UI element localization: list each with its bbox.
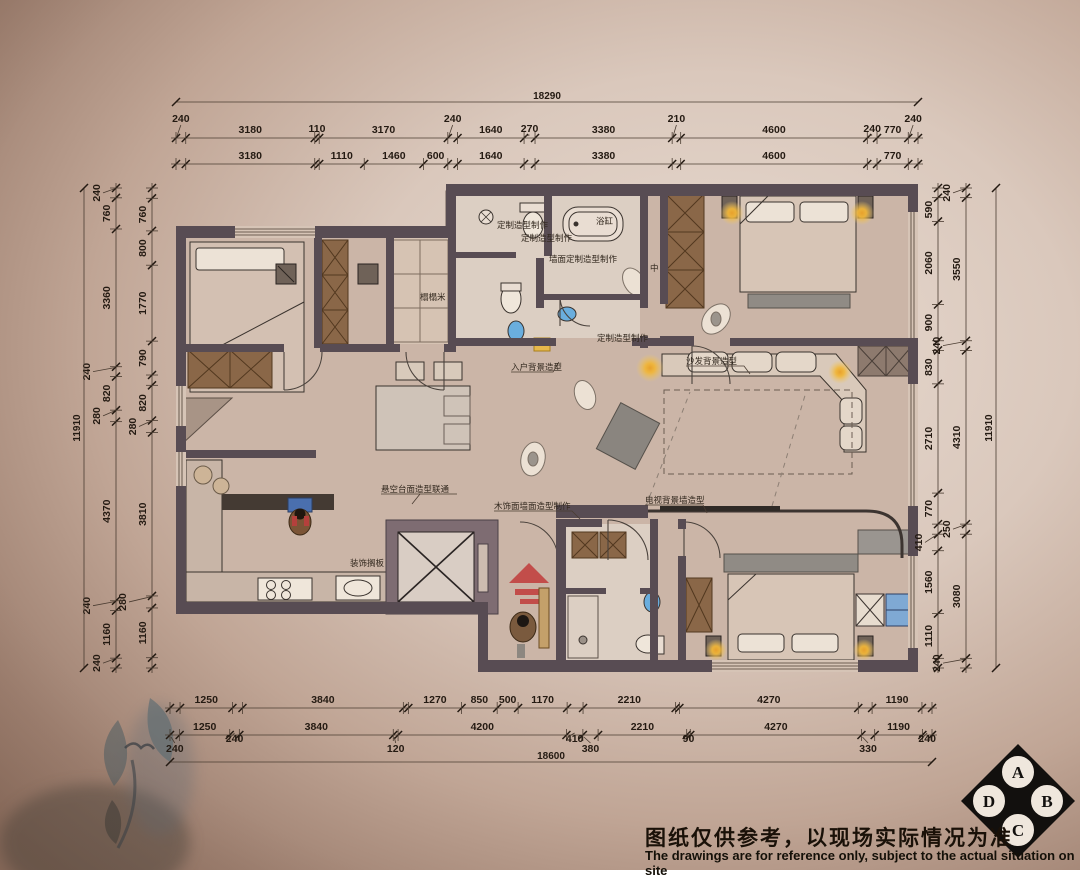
svg-text:11910: 11910 (72, 414, 83, 442)
svg-text:4200: 4200 (471, 721, 495, 733)
svg-text:270: 270 (521, 123, 539, 135)
window (908, 556, 918, 648)
closet-right-wall (858, 346, 912, 376)
window (908, 212, 918, 338)
lamp-glow (636, 354, 664, 382)
svg-text:600: 600 (427, 150, 445, 162)
svg-text:210: 210 (668, 113, 686, 125)
lamp-glow (705, 639, 727, 661)
dimension-chain-bottom: 1250384012708505001170221042701190240125… (165, 694, 937, 766)
window (712, 660, 858, 672)
svg-text:410: 410 (913, 534, 925, 552)
svg-text:4600: 4600 (762, 124, 786, 136)
plan-annotation: 装饰搁板 (350, 558, 385, 568)
svg-text:1250: 1250 (195, 694, 219, 706)
svg-text:330: 330 (859, 743, 877, 755)
svg-text:250: 250 (941, 520, 953, 538)
nightstand-bedroom2 (358, 264, 378, 284)
window (176, 452, 186, 486)
plan-annotation: 浴缸 (596, 216, 614, 226)
plan-annotation: 定制造型制作 (597, 333, 649, 343)
svg-text:3080: 3080 (951, 584, 963, 608)
svg-text:1560: 1560 (923, 570, 935, 594)
plan-annotation: 电视背景墙造型 (645, 495, 705, 505)
svg-text:3810: 3810 (137, 502, 149, 526)
appliance-boxes (856, 594, 912, 626)
plan-annotation: 定制造型制作 (521, 233, 573, 243)
svg-text:110: 110 (308, 123, 325, 135)
svg-text:2710: 2710 (923, 427, 935, 451)
plan-annotation: 悬空台面造型联通 (381, 484, 450, 494)
svg-text:1270: 1270 (423, 694, 447, 706)
svg-text:3840: 3840 (311, 694, 335, 706)
lamp-glow (720, 201, 744, 225)
elevator-shaft (386, 520, 498, 614)
plan-annotation: 木饰面墙面造型制作 (494, 501, 571, 511)
dimension-chain-right: 5902060900830271077041015601110240355024… (913, 183, 1000, 673)
svg-text:1250: 1250 (193, 721, 217, 733)
svg-text:500: 500 (499, 694, 517, 706)
svg-text:790: 790 (137, 349, 149, 367)
window (908, 384, 918, 506)
svg-text:760: 760 (137, 206, 149, 224)
svg-text:1160: 1160 (101, 623, 113, 646)
svg-text:18600: 18600 (537, 751, 565, 762)
svg-text:240: 240 (91, 654, 103, 672)
dimension-chain-top: 1829024031801103170240164027033802104600… (171, 91, 923, 170)
svg-text:240: 240 (904, 113, 922, 125)
svg-text:830: 830 (923, 358, 935, 376)
svg-text:800: 800 (137, 239, 149, 257)
compass-letter-d: D (983, 792, 995, 811)
svg-text:240: 240 (863, 123, 881, 135)
foliage-decor (0, 698, 194, 870)
svg-text:280: 280 (127, 418, 139, 436)
svg-text:240: 240 (918, 733, 936, 745)
toilet-icon-2 (501, 283, 521, 313)
svg-text:4370: 4370 (101, 499, 113, 523)
svg-text:770: 770 (923, 500, 935, 518)
lamp-glow (828, 360, 852, 384)
lamp-glow (853, 639, 875, 661)
svg-text:240: 240 (172, 113, 190, 125)
svg-text:3180: 3180 (239, 150, 263, 162)
svg-text:240: 240 (444, 113, 462, 125)
window (176, 386, 186, 426)
svg-text:1190: 1190 (887, 721, 910, 733)
svg-text:770: 770 (884, 150, 902, 162)
svg-text:3550: 3550 (951, 257, 963, 281)
wardrobe-left (188, 350, 272, 388)
svg-text:2210: 2210 (631, 721, 655, 733)
svg-text:3170: 3170 (372, 124, 396, 136)
svg-text:1160: 1160 (137, 621, 149, 644)
svg-text:4600: 4600 (762, 150, 786, 162)
svg-text:820: 820 (137, 394, 149, 412)
plan-annotation: 入户背景造型 (511, 362, 563, 372)
svg-text:820: 820 (101, 384, 113, 402)
wardrobe-bedroom2 (322, 240, 348, 344)
plan-annotation: 墙面定制造型制作 (549, 254, 618, 264)
svg-text:90: 90 (683, 733, 695, 745)
compass-letter-b: B (1041, 792, 1052, 811)
sink-icon-2 (558, 307, 576, 321)
svg-text:240: 240 (931, 337, 943, 355)
wardrobe-top-right (666, 194, 704, 308)
svg-text:380: 380 (582, 743, 600, 755)
svg-text:3360: 3360 (101, 286, 113, 310)
svg-text:1460: 1460 (382, 150, 406, 162)
plan-annotation: 榻榻米 (420, 292, 446, 302)
svg-text:1170: 1170 (531, 694, 554, 706)
svg-text:3180: 3180 (239, 124, 263, 136)
svg-text:240: 240 (166, 743, 184, 755)
compass-letter-c: C (1012, 821, 1024, 840)
tv-icon (660, 506, 780, 511)
svg-text:3380: 3380 (592, 124, 616, 136)
window (235, 226, 315, 238)
svg-text:240: 240 (81, 597, 93, 615)
svg-text:240: 240 (91, 184, 103, 202)
svg-text:120: 120 (387, 743, 405, 755)
bed-bottom-right (706, 554, 873, 660)
svg-text:590: 590 (923, 201, 935, 219)
svg-text:240: 240 (226, 733, 244, 745)
plan-annotation: 定制造型制作 (497, 220, 549, 230)
svg-text:2060: 2060 (923, 251, 935, 275)
svg-text:280: 280 (91, 407, 103, 425)
closet-bottom (686, 578, 712, 632)
floor-plan-drawing: 1829024031801103170240164027033802104600… (0, 0, 1080, 870)
lamp-glow (850, 201, 874, 225)
svg-text:850: 850 (471, 694, 489, 706)
drain-icon (579, 636, 587, 644)
svg-text:1110: 1110 (331, 150, 353, 162)
svg-text:760: 760 (101, 205, 113, 223)
svg-text:1640: 1640 (479, 124, 503, 136)
compass-letter-a: A (1012, 763, 1025, 782)
svg-text:11910: 11910 (984, 414, 995, 442)
plan-annotation: 沙发背景造型 (686, 356, 738, 366)
svg-text:1770: 1770 (137, 291, 149, 315)
svg-text:4270: 4270 (757, 694, 781, 706)
dimension-chain-left: 7608001770790820280381028011602407603360… (72, 183, 158, 673)
svg-text:1190: 1190 (886, 694, 909, 706)
svg-text:3840: 3840 (305, 721, 329, 733)
svg-text:18290: 18290 (533, 91, 561, 102)
svg-text:240: 240 (81, 363, 93, 381)
svg-text:900: 900 (923, 314, 935, 332)
svg-text:240: 240 (931, 654, 943, 672)
svg-text:4310: 4310 (951, 425, 963, 449)
svg-text:1640: 1640 (479, 150, 503, 162)
disclaimer-english: The drawings are for reference only, sub… (645, 848, 1080, 878)
svg-text:3380: 3380 (592, 150, 616, 162)
svg-text:2210: 2210 (618, 694, 642, 706)
svg-text:770: 770 (884, 124, 902, 136)
floating-bar-counter (222, 494, 334, 510)
plan-annotation: 中 (650, 263, 659, 273)
svg-text:240: 240 (941, 184, 953, 202)
svg-text:4270: 4270 (764, 721, 788, 733)
svg-text:1110: 1110 (923, 625, 935, 647)
